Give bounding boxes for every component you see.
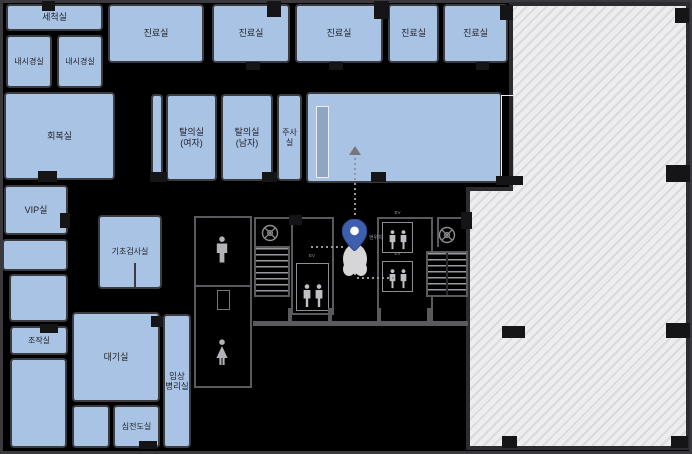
room-recovery[interactable]: 회복실 — [4, 92, 115, 180]
person-icon — [399, 269, 408, 289]
bottom-wall — [253, 321, 468, 326]
pillar — [40, 324, 58, 333]
room-label: 주사실 — [279, 128, 300, 147]
room-waiting[interactable]: 대기실 — [72, 312, 160, 402]
room-endoscopy-2[interactable]: 내시경실 — [57, 35, 103, 88]
room-exam-1[interactable]: 진료실 — [108, 4, 204, 63]
pillar — [246, 62, 260, 70]
pillar — [374, 1, 389, 19]
toilet-stall — [217, 290, 230, 310]
room-exam-5[interactable]: 진료실 — [443, 4, 508, 63]
pin-label: 현위치 — [369, 236, 383, 241]
corridor-area — [306, 92, 502, 183]
room-label: 탈의실 (여자) — [176, 127, 208, 149]
elevator-label: EV — [382, 211, 413, 216]
pillar — [461, 212, 472, 229]
room-label: 조작실 — [28, 336, 50, 346]
wall-stub — [377, 308, 381, 322]
pillar — [371, 172, 386, 182]
person-icon — [399, 230, 408, 250]
room-label: 대기실 — [104, 352, 129, 363]
room-unlabeled-2[interactable] — [9, 274, 68, 322]
room-endoscopy-1[interactable]: 내시경실 — [6, 35, 52, 88]
pillar — [42, 1, 55, 11]
person-icon — [388, 269, 397, 289]
room-label: 진료실 — [327, 28, 352, 39]
room-vip[interactable]: VIP실 — [4, 185, 68, 235]
up-arrow-icon — [349, 146, 361, 155]
room-unlabeled-1[interactable] — [2, 239, 68, 271]
pillar — [502, 326, 525, 338]
room-label: 진료실 — [401, 28, 426, 39]
room-label: 진료실 — [239, 28, 264, 39]
toilet-divider-wall — [196, 285, 250, 287]
wall-segment — [254, 217, 256, 248]
room-unlabeled-4[interactable] — [72, 405, 110, 448]
pillar — [38, 171, 57, 182]
pillar — [329, 62, 343, 70]
floor-plan: 세척실 내시경실 내시경실 진료실 진료실 진료실 진료실 진료실 회복실 탈의… — [0, 0, 692, 454]
door-frame-right — [501, 95, 515, 177]
room-exam-4[interactable]: 진료실 — [388, 4, 439, 63]
room-injection[interactable]: 주사실 — [277, 94, 302, 181]
room-label: 진료실 — [144, 28, 169, 39]
person-icon — [388, 230, 397, 250]
pillar — [267, 1, 281, 17]
room-label: 내시경실 — [14, 57, 43, 67]
room-basic-exam[interactable]: 기초검사실 — [98, 215, 162, 289]
room-label: 세척실 — [42, 12, 67, 23]
room-changing-women[interactable]: 탈의실 (여자) — [166, 94, 217, 181]
room-changing-men[interactable]: 탈의실 (남자) — [221, 94, 273, 181]
room-exam-3[interactable]: 진료실 — [295, 4, 383, 63]
stairs-divider — [446, 253, 448, 295]
pillar — [502, 436, 517, 448]
door-frame-left — [316, 106, 329, 178]
room-label: 탈의실 (남자) — [231, 127, 263, 149]
room-label: 기초검사실 — [112, 247, 149, 257]
location-pin-icon[interactable] — [342, 219, 367, 251]
pillar — [666, 323, 690, 338]
route-dotted-line — [311, 246, 343, 248]
pillar — [262, 172, 277, 182]
pillar — [675, 8, 689, 23]
room-unlabeled-sliver[interactable] — [151, 94, 163, 180]
room-label: 임상 병리실 — [165, 371, 189, 391]
pillar — [666, 165, 690, 182]
elevator-label: EV — [382, 252, 413, 257]
room-label: 심전도실 — [122, 422, 151, 432]
pillar — [496, 176, 523, 185]
pillar — [151, 316, 163, 327]
pillar — [671, 436, 688, 448]
person-icon — [314, 284, 324, 308]
room-control[interactable]: 조작실 — [10, 326, 68, 355]
female-toilet-icon — [215, 339, 229, 367]
inner-partition — [134, 263, 136, 289]
room-label: VIP실 — [25, 205, 48, 216]
wall-segment — [377, 217, 433, 219]
person-icon — [302, 284, 312, 308]
room-unlabeled-3[interactable] — [10, 358, 67, 448]
wall-stub — [288, 308, 292, 322]
pillar — [60, 213, 70, 228]
pillar — [150, 172, 167, 182]
route-dotted-line — [354, 158, 356, 216]
elevator-label: EV — [294, 254, 330, 259]
room-label: 진료실 — [463, 28, 488, 39]
room-clinical-pathology[interactable]: 임상 병리실 — [163, 314, 191, 448]
elevator-left[interactable] — [296, 263, 329, 311]
pillar — [139, 441, 157, 449]
pillar — [289, 215, 302, 225]
male-toilet-icon — [215, 236, 229, 264]
wall-stub — [328, 308, 332, 322]
room-label: 회복실 — [47, 131, 72, 142]
elevator-right-upper[interactable] — [382, 222, 413, 253]
wall-stub — [427, 308, 431, 322]
fan-icon — [438, 226, 456, 244]
stairs-left[interactable] — [254, 246, 290, 297]
fan-icon — [261, 224, 279, 242]
pillar — [500, 5, 513, 20]
pillar — [476, 62, 489, 70]
room-label: 내시경실 — [65, 57, 94, 67]
